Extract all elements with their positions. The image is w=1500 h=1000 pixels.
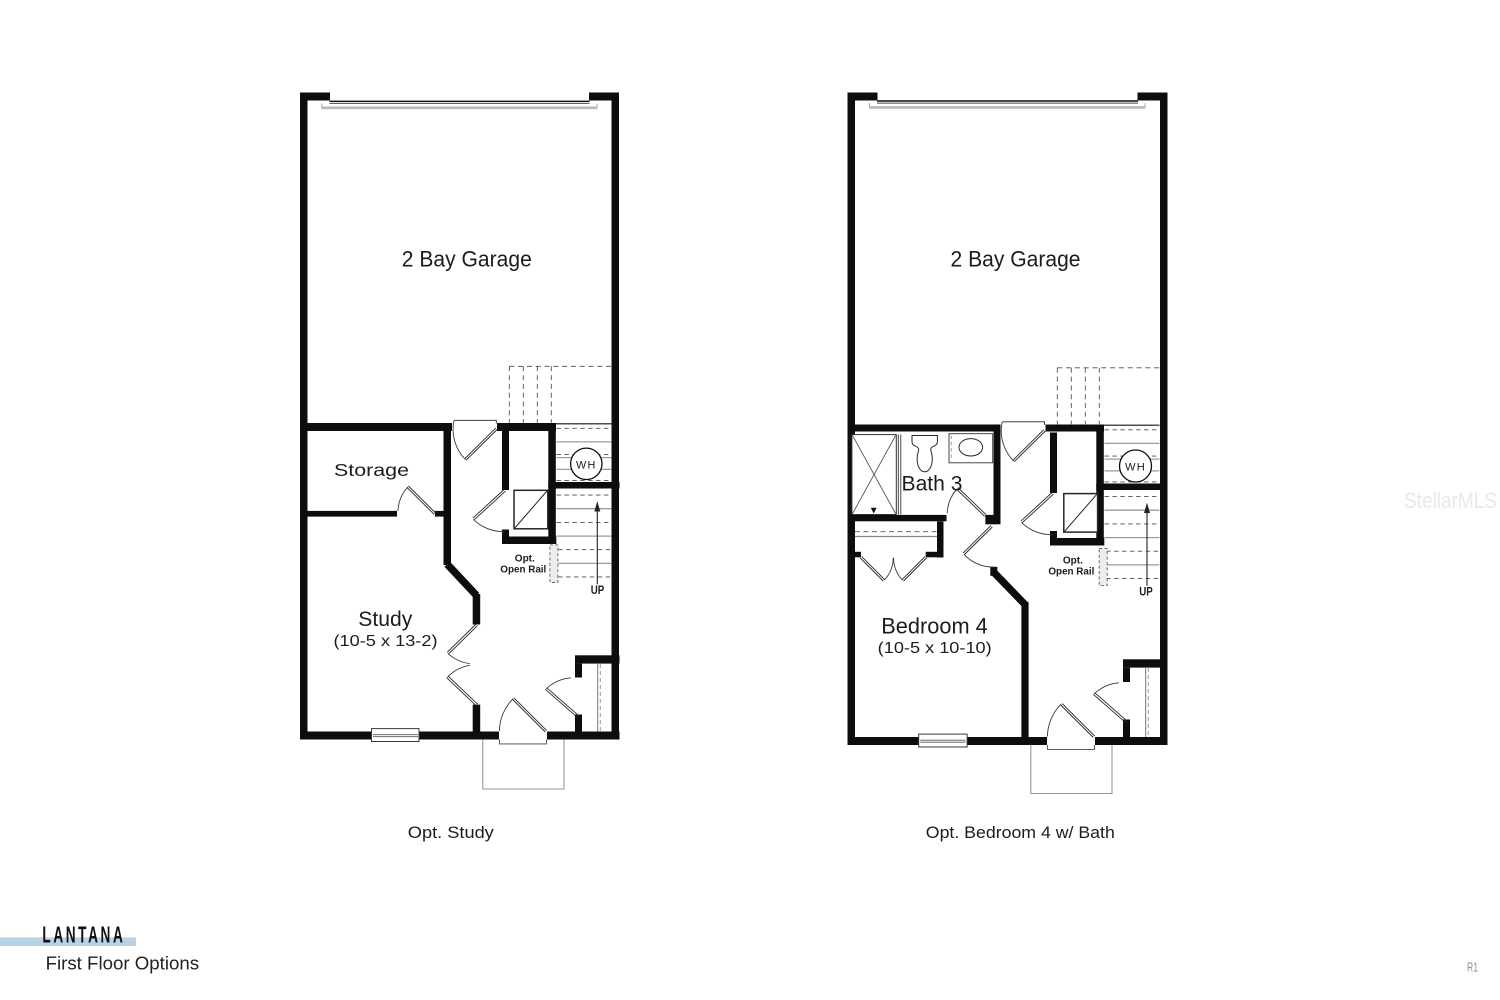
svg-text:StellarMLS: StellarMLS [1404, 488, 1497, 513]
svg-text:Opt. Study: Opt. Study [408, 823, 495, 842]
svg-text:(10-5 x 10-10): (10-5 x 10-10) [878, 640, 992, 657]
svg-text:WH: WH [1125, 462, 1146, 474]
svg-text:First Floor Options: First Floor Options [46, 952, 200, 973]
svg-text:Bath 3: Bath 3 [902, 471, 963, 495]
svg-text:UP: UP [1139, 587, 1153, 599]
svg-text:(10-5 x 13-2): (10-5 x 13-2) [334, 633, 438, 650]
svg-text:LANTANA: LANTANA [42, 921, 125, 947]
svg-text:UP: UP [591, 585, 605, 597]
svg-text:Opt.: Opt. [515, 553, 535, 564]
svg-text:Storage: Storage [334, 460, 409, 480]
svg-text:R1: R1 [1467, 961, 1478, 975]
svg-text:Open Rail: Open Rail [1048, 567, 1094, 578]
svg-text:Open Rail: Open Rail [500, 564, 546, 575]
svg-text:WH: WH [576, 459, 597, 471]
svg-text:2 Bay Garage: 2 Bay Garage [402, 246, 532, 271]
svg-text:Opt. Bedroom 4 w/ Bath: Opt. Bedroom 4 w/ Bath [926, 823, 1115, 842]
svg-text:Study: Study [358, 608, 412, 631]
svg-text:Bedroom 4: Bedroom 4 [881, 614, 988, 639]
svg-text:Opt.: Opt. [1063, 556, 1083, 567]
svg-text:2 Bay Garage: 2 Bay Garage [951, 246, 1081, 271]
